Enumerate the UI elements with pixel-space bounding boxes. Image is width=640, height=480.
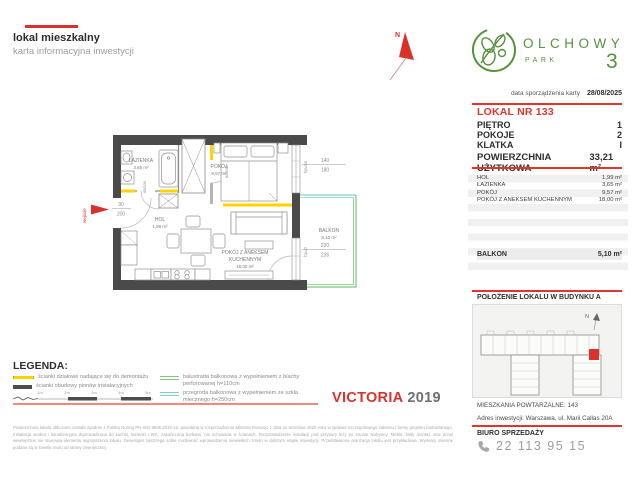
north-arrow-tail (390, 58, 406, 80)
washing-machine (121, 171, 134, 184)
brand-year: 2019 (407, 390, 440, 406)
locator-north-arrow: N (585, 313, 600, 330)
label-bedroom-area: 9,57 m² (211, 171, 227, 176)
label-bathroom-area: 3,65 m² (133, 165, 149, 170)
dim-entry-width: 90 (118, 202, 124, 208)
dim-bathroom-door: 80/200 (142, 180, 147, 193)
card-date: data sporządzenia karty 28/08/2025 (477, 90, 622, 97)
attr-floor: PIĘTRO 1 (477, 120, 622, 130)
logo-word: OLCHOWY (523, 36, 624, 51)
room-row-aneks: POKÓJ Z ANEKSEM KUCHENNYM 18,00 m² (477, 197, 622, 204)
label-living-area: 18,00 m² (236, 264, 254, 269)
legend-item-teal: przegroda balkonowa z wypełnieniem ze sz… (160, 390, 318, 404)
logo-word2: PARK (525, 57, 558, 64)
legal-footnote: Powierzchnia lokalu obliczona została zg… (13, 425, 453, 452)
divider (472, 290, 622, 292)
attr-staircase: KLATKA I (477, 140, 622, 150)
label-living-2: KUCHENNYM (229, 257, 261, 263)
doc-subtitle: karta informacyjna inwestycji (13, 46, 134, 57)
room-label: POKÓJ Z ANEKSEM KUCHENNYM (477, 197, 572, 204)
attr-rooms: POKOJE 2 (477, 130, 622, 140)
attr-label: PIĘTRO (477, 120, 511, 130)
dim-entry-height: 200 (117, 212, 126, 218)
unit-highlight (589, 349, 599, 360)
balustrade-swatch (160, 376, 179, 380)
label-balcony-area: 5,10 m² (321, 235, 337, 240)
room-value: 18,00 m² (599, 197, 622, 204)
scale-tick: 3m (91, 390, 97, 395)
entrance-marker: wejście (82, 205, 109, 224)
sales-office-phone: 22 113 95 15 (477, 439, 586, 453)
sofa (231, 212, 287, 249)
attr-value: 2 (617, 130, 622, 140)
label-bathroom: ŁAZIENKA (129, 158, 154, 164)
scale-tick: 5m (145, 390, 151, 395)
bathtub (159, 150, 178, 187)
scale-segment (121, 397, 151, 401)
investment-address: Adres inwestycji: Warszawa, ul. Marii Ca… (477, 415, 613, 422)
scale-segment (68, 397, 97, 401)
balcony-divider-swatch (160, 392, 179, 396)
phone-number: 22 113 95 15 (496, 439, 586, 453)
room-value: 9,57 m² (602, 190, 622, 197)
unit-number: LOKAL NR 133 (477, 106, 554, 118)
logo-leaf-icon (468, 22, 523, 79)
room-row-hol: HOL 1,99 m² (477, 175, 622, 182)
window-top (292, 145, 300, 193)
header-accent-bar (25, 25, 78, 28)
attr-label: KLATKA (477, 140, 513, 150)
entrance-label: wejście (82, 208, 87, 223)
label-bedroom: POKÓJ (211, 163, 228, 170)
room-label: ŁAZIENKA (477, 182, 505, 189)
shaft-wall-swatch (13, 385, 32, 389)
dim-window2-height: 235 (321, 253, 330, 259)
logo-number: 3 (606, 50, 618, 73)
unit-info-card: { "header": { "doc_title": "lokal mieszk… (0, 0, 640, 480)
label-hall: HOL (155, 217, 166, 223)
divider (472, 103, 622, 105)
building-locator: N (472, 304, 622, 398)
label-living-1: POKÓJ Z ANEKSEM (222, 249, 269, 256)
card-date-value: 28/08/2025 (587, 90, 622, 97)
north-letter: N (395, 32, 400, 39)
card-date-label: data sporządzenia karty (511, 90, 580, 97)
scale-tick: 4m (118, 390, 124, 395)
label-hall-area: 1,99 m² (152, 224, 168, 229)
balcony-value: 5,10 m² (598, 249, 622, 260)
dim-window1-sill: hp=54 (303, 160, 308, 172)
olchowy-park-logo: OLCHOWY PARK 3 (468, 22, 628, 80)
legend-item-green: balustrada balkonowa z wypełnieniem z bl… (160, 374, 318, 388)
usable-area: POWIERZCHNIA UŻYTKOWA 33,21 m² (477, 152, 622, 174)
attr-value: I (619, 140, 622, 150)
attr-value: 1 (617, 120, 622, 130)
north-arrow-head (399, 32, 414, 60)
dim-window1-width: 140 (321, 158, 330, 164)
legend-item-yellow: ścianki działowe nadające się do demonta… (13, 374, 153, 381)
north-arrow: N (383, 18, 429, 82)
floor-plan: wejście 90 200 140 180 hp=54 220 235 hp=… (55, 95, 365, 325)
unit-info-panel: data sporządzenia karty 28/08/2025 LOKAL… (468, 88, 628, 480)
repeatable-units: MIESZKANIA POWTARZALNE: 143 (477, 402, 578, 409)
legend-label: balustrada balkonowa z wypełnieniem z bl… (183, 374, 318, 388)
yellow-partition-swatch (13, 376, 34, 379)
balcony-row: BALKON 5,10 m² (477, 249, 622, 260)
dim-window2-sill: hp=0 (303, 247, 308, 257)
room-label: HOL (477, 175, 489, 182)
usable-area-value: 33,21 m² (589, 152, 622, 174)
room-value: 1,99 m² (602, 175, 622, 182)
dim-window1-height: 180 (321, 168, 330, 174)
room-value: 3,65 m² (602, 182, 622, 189)
building-balconies (487, 331, 574, 335)
phone-icon (477, 440, 490, 453)
scale-bar: 1m 2m 3m 4m 5m (13, 389, 153, 402)
fridge-cabinets (121, 231, 137, 265)
scale-wave (13, 397, 38, 400)
doc-title: lokal mieszkalny (13, 32, 100, 44)
scale-ticks: 1m 2m 3m 4m 5m (37, 390, 151, 395)
room-row-lazienka: ŁAZIENKA 3,65 m² (477, 182, 622, 189)
developer-brand: VICTORIA2019 (332, 390, 441, 406)
attr-label: POKOJE (477, 130, 515, 140)
kitchen-counter (135, 269, 210, 280)
scale-tick: 1m (37, 390, 43, 395)
usable-area-label: POWIERZCHNIA UŻYTKOWA (477, 152, 589, 174)
room-row-pokoj: POKÓJ 9,57 m² (477, 190, 622, 197)
legend-label: przegroda balkonowa z wypełnieniem ze sz… (183, 390, 318, 404)
footer-divider (13, 403, 318, 405)
dining-table (167, 216, 225, 266)
balcony-railing (300, 195, 356, 287)
balcony-label: BALKON (477, 249, 507, 260)
label-balcony: BALKON (319, 228, 340, 234)
divider (472, 425, 622, 427)
tv-sideboard (225, 271, 273, 279)
brand-name: VICTORIA (332, 390, 403, 406)
sales-office-label: BIURO SPRZEDAŻY (477, 430, 544, 437)
dim-window2-width: 220 (321, 243, 330, 249)
location-title: POŁOŻENIE LOKALU W BUDYNKU A (477, 294, 601, 301)
divider (472, 167, 622, 169)
room-label: POKÓJ (477, 190, 497, 197)
legend-label: ścianki działowe nadające się do demonta… (38, 374, 148, 381)
scale-tick: 2m (64, 390, 70, 395)
legend-title: LEGENDA: (13, 360, 68, 372)
svg-text:N: N (585, 314, 589, 320)
